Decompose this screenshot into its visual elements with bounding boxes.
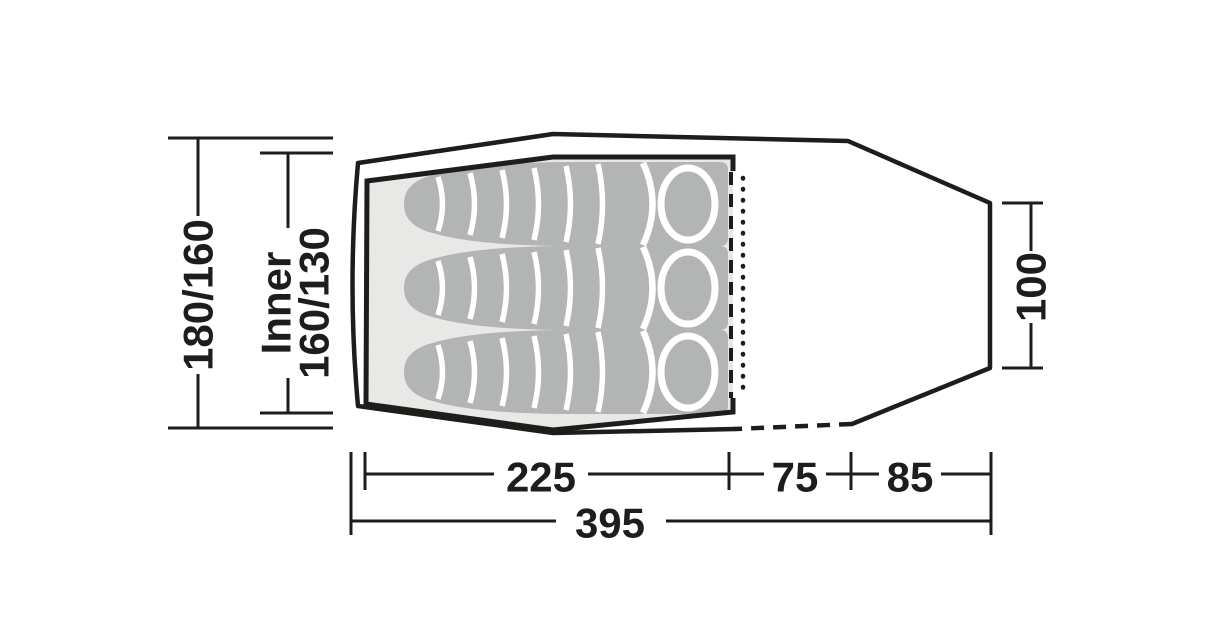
tent-dimension-diagram: 180/160 Inner 160/130 100 225 75 85 395 <box>0 0 1230 641</box>
inner-length-label: 225 <box>506 454 576 501</box>
sleeping-bag-2 <box>404 246 728 330</box>
inner-width-value-label: 160/130 <box>291 227 338 379</box>
sleeping-bag-3 <box>404 330 728 414</box>
total-length-label: 395 <box>575 500 645 547</box>
dimension-total-length: 395 <box>351 500 991 547</box>
dimension-inner-width: Inner 160/130 <box>253 153 338 413</box>
porch-length-label: 75 <box>772 454 819 501</box>
rear-width-label: 100 <box>1008 252 1055 322</box>
dimension-length-segments: 225 75 85 <box>351 452 991 535</box>
rear-length-label: 85 <box>887 454 934 501</box>
outer-width-label: 180/160 <box>175 219 222 371</box>
sleeping-bag-1 <box>404 162 728 246</box>
dimension-rear-width: 100 <box>1002 203 1055 368</box>
tent-floorplan-svg: 180/160 Inner 160/130 100 225 75 85 395 <box>0 0 1230 641</box>
porch-dashed-edge <box>735 424 852 429</box>
